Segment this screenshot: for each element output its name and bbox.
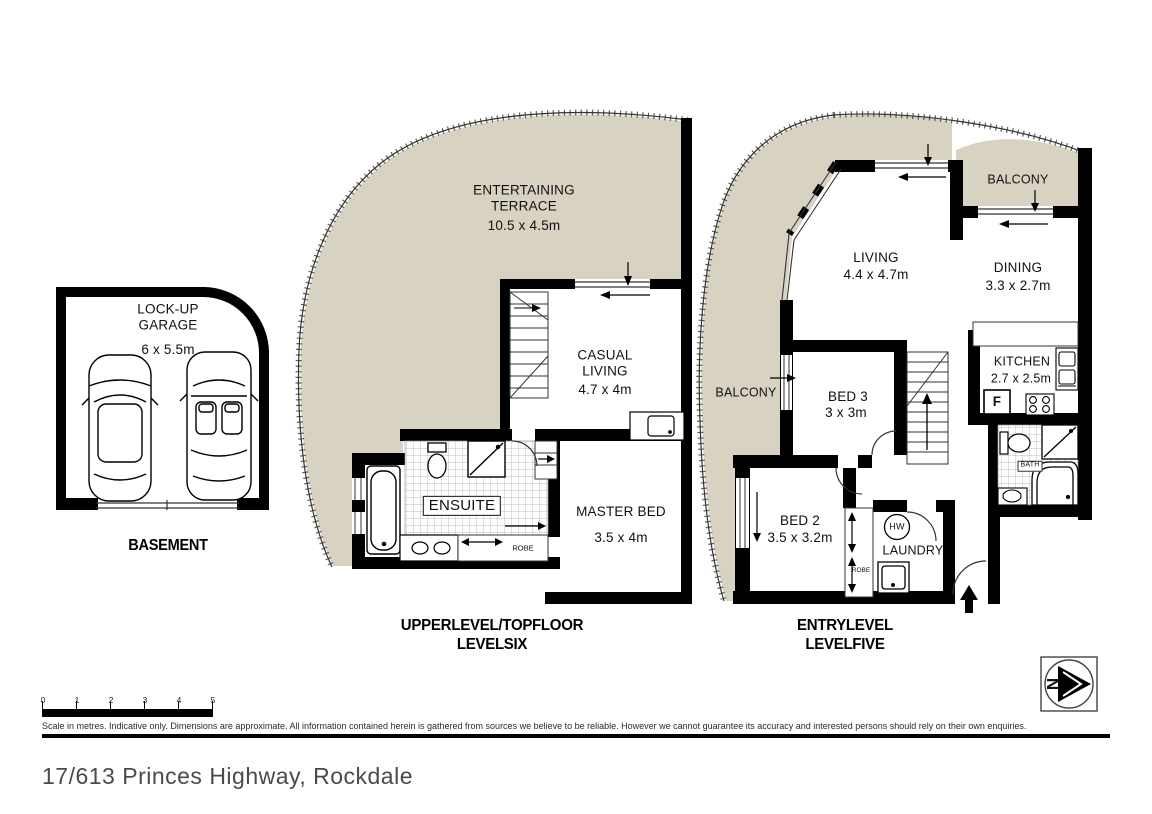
robe-label-upper: ROBE [512,543,533,552]
robe-label-entry: ROBE [852,567,870,575]
linen-cupboard [535,441,557,479]
divider-line [42,734,1110,738]
scale-tick-5: 5 [211,695,216,705]
bed3-label: BED 3 [828,389,868,405]
address-text: 17/613 Princes Highway, Rockdale [42,763,413,790]
garage-label: LOCK-UP GARAGE [111,302,226,335]
wetbar-sink-icon [630,412,684,440]
scale-tick-2: 2 [109,695,114,705]
door-arc [872,431,896,455]
scale-tick-3: 3 [143,695,148,705]
robe-entry [845,508,873,597]
floorplan-page: LOCK-UP GARAGE 6 x 5.5m BASEMENT ENTERTA… [0,0,1152,814]
kitchen-sink-icon [1056,348,1078,390]
cooktop-icon [1026,394,1054,415]
car-icon [82,355,158,501]
balcony-west-label: BALCONY [715,385,776,400]
scale-tick-1: 1 [75,695,80,705]
stairs-icon [907,352,948,464]
floorplan-graphics [0,0,1152,814]
dining-label: DINING [994,260,1042,276]
basin-icon [998,488,1027,505]
scale-tick-0: 0 [41,695,46,705]
bed3-dims: 3 x 3m [825,405,867,421]
living-dims: 4.4 x 4.7m [843,267,908,283]
kitchen-dims: 2.7 x 2.5m [991,371,1051,386]
toilet-icon [1000,432,1030,454]
disclaimer-text: Scale in metres. Indicative only. Dimens… [42,721,1026,731]
bed2-label: BED 2 [780,513,820,529]
convertible-car-icon [180,352,258,500]
master-bed-label: MASTER BED [574,504,669,520]
living-label: LIVING [853,250,898,266]
entry-door [953,561,986,613]
scale-tick-4: 4 [177,695,182,705]
kitchen-label: KITCHEN [994,354,1050,369]
terrace-label: ENTERTAINING TERRACE [449,183,599,216]
stairs-icon [510,292,548,398]
upper-level-caption-line2: LEVEL SIX [457,636,527,654]
vanity-icon [400,535,458,561]
entry-level-caption-line1: ENTRY LEVEL [797,617,893,635]
terrace-dims: 10.5 x 4.5m [488,218,561,234]
shower-icon [468,441,505,477]
master-bed-dims: 3.5 x 4m [594,530,647,546]
casual-living-dims: 4.7 x 4m [578,382,631,398]
kitchen-counter [973,322,1078,346]
laundry-tub-icon [878,562,909,593]
casual-living-label: CASUAL LIVING [563,348,648,381]
shower-icon [1042,425,1078,459]
door-arc [907,512,936,541]
scale-bar [42,701,213,717]
hot-water-label: HW [889,522,904,533]
ensuite-label: ENSUITE [423,496,501,516]
laundry-label: LAUNDRY [883,543,944,558]
entry-level-caption-line2: LEVEL FIVE [805,636,884,654]
garage-dims: 6 x 5.5m [141,342,194,358]
north-letter: N [1042,678,1062,690]
basement-caption: BASEMENT [128,537,208,555]
bed2-dims: 3.5 x 3.2m [767,530,832,546]
balcony-north-label: BALCONY [987,172,1048,187]
toilet-icon [428,443,446,478]
upper-level-caption-line1: UPPER LEVEL/TOP FLOOR [401,617,583,635]
bathtub-icon [367,466,400,554]
bath-label: BATH [1018,461,1043,472]
fridge-label: F [993,394,1001,410]
dining-dims: 3.3 x 2.7m [985,278,1050,294]
